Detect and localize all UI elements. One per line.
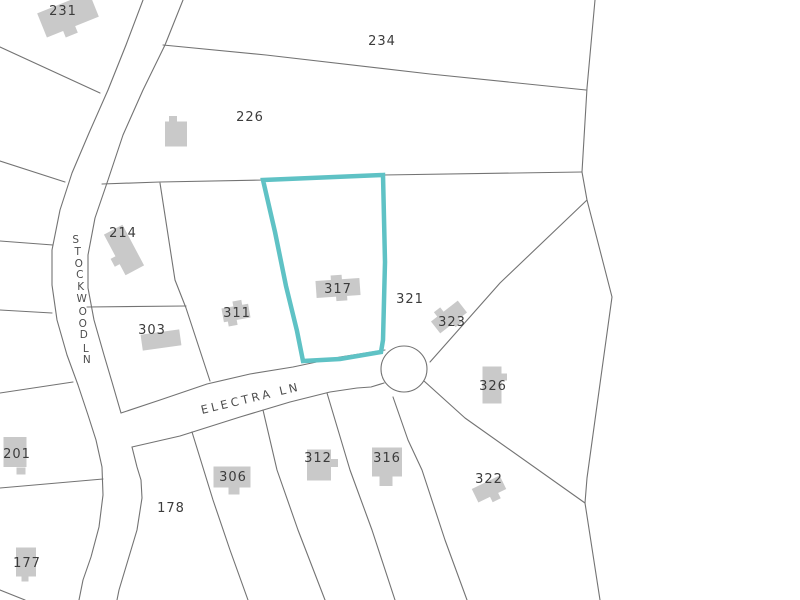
- road-label-letter: W: [77, 293, 88, 305]
- road-label-letter: S: [72, 234, 79, 246]
- parcel-label-311[interactable]: 311: [223, 306, 251, 321]
- cul-de-sac-circle: [381, 346, 427, 392]
- parcel-label-201[interactable]: 201: [3, 447, 31, 462]
- parcel-label-321[interactable]: 321: [396, 292, 424, 307]
- building-wing-317: [331, 275, 342, 282]
- road-label-letter: N: [83, 354, 91, 366]
- road-label-letter: T: [74, 246, 82, 258]
- parcel-label-322[interactable]: 322: [475, 472, 503, 487]
- parcel-label-177[interactable]: 177: [13, 556, 41, 571]
- building-wing-306: [229, 488, 240, 495]
- building-wing-177: [22, 577, 29, 582]
- building-wing-316: [380, 476, 393, 486]
- parcel-label-231[interactable]: 231: [49, 4, 77, 19]
- building-body-226: [165, 122, 187, 147]
- parcel-label-312[interactable]: 312: [304, 451, 332, 466]
- map-canvas[interactable]: 2312342262143033113173213233263223063123…: [0, 0, 800, 600]
- parcel-label-326[interactable]: 326: [479, 379, 507, 394]
- parcel-label-303[interactable]: 303: [138, 323, 166, 338]
- road-label-letter: O: [79, 306, 88, 318]
- building-wing-201: [17, 468, 26, 475]
- building-wing-226: [169, 116, 177, 122]
- parcel-label-316[interactable]: 316: [373, 451, 401, 466]
- road-label-letter: K: [77, 281, 85, 293]
- road-label-letter: D: [80, 329, 89, 341]
- parcel-label-214[interactable]: 214: [109, 226, 137, 241]
- parcel-label-306[interactable]: 306: [219, 470, 247, 485]
- parcel-label-323[interactable]: 323: [438, 315, 466, 330]
- parcel-label-317[interactable]: 317: [324, 282, 352, 297]
- road-label-letter: C: [76, 269, 84, 281]
- parcel-label-226[interactable]: 226: [236, 110, 264, 125]
- parcel-map: 2312342262143033113173213233263223063123…: [0, 0, 800, 600]
- parcel-label-178[interactable]: 178: [157, 501, 185, 516]
- parcel-label-234[interactable]: 234: [368, 34, 396, 49]
